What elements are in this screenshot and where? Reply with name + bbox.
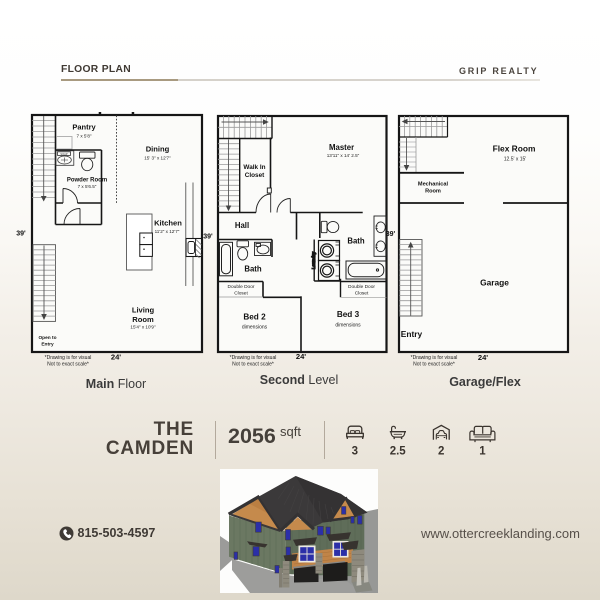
svg-text:39': 39' xyxy=(386,231,396,238)
svg-text:Garage: Garage xyxy=(480,278,509,288)
svg-text:Closet: Closet xyxy=(355,290,369,296)
svg-text:dimensions: dimensions xyxy=(335,323,361,329)
svg-text:Mechanical: Mechanical xyxy=(418,182,449,188)
svg-text:7 x 5'8": 7 x 5'8" xyxy=(76,134,91,139)
svg-text:Open to: Open to xyxy=(38,335,56,341)
svg-text:SOAP: SOAP xyxy=(60,152,67,156)
svg-text:Entry: Entry xyxy=(41,342,54,348)
svg-text:Room: Room xyxy=(425,189,441,195)
svg-text:*Drawing is for visual: *Drawing is for visual xyxy=(230,355,277,361)
svg-text:Laundry: Laundry xyxy=(311,251,316,269)
svg-text:Powder Room: Powder Room xyxy=(67,178,107,184)
svg-text:Bed 3: Bed 3 xyxy=(337,310,360,319)
svg-text:Walk In: Walk In xyxy=(243,164,265,171)
svg-text:2.5: 2.5 xyxy=(390,446,407,458)
svg-text:1: 1 xyxy=(479,446,486,458)
svg-text:dimensions: dimensions xyxy=(242,325,268,331)
svg-text:Bath: Bath xyxy=(347,236,365,245)
svg-text:Master: Master xyxy=(329,143,354,152)
svg-text:12.5' x 15': 12.5' x 15' xyxy=(504,156,527,162)
svg-text:*Drawing is for visual: *Drawing is for visual xyxy=(45,355,92,361)
svg-text:Kitchen: Kitchen xyxy=(154,219,182,228)
svg-text:39': 39' xyxy=(16,231,26,238)
svg-text:13'11" x 14' 2.5": 13'11" x 14' 2.5" xyxy=(327,153,360,158)
svg-text:Double Door: Double Door xyxy=(348,284,375,290)
svg-text:2: 2 xyxy=(438,446,444,458)
svg-text:15'4" x 10'9": 15'4" x 10'9" xyxy=(130,325,156,330)
svg-text:Double Door: Double Door xyxy=(228,284,255,290)
svg-text:24': 24' xyxy=(296,352,306,361)
svg-text:Pantry: Pantry xyxy=(72,123,96,132)
svg-text:Entry: Entry xyxy=(401,329,423,339)
svg-text:Dining: Dining xyxy=(146,145,170,154)
svg-text:Room: Room xyxy=(132,315,154,324)
svg-text:Closet: Closet xyxy=(245,172,265,179)
svg-text:3: 3 xyxy=(352,446,358,458)
svg-text:*Drawing is for visual: *Drawing is for visual xyxy=(411,355,458,361)
svg-text:Bed 2: Bed 2 xyxy=(243,313,266,322)
svg-text:24': 24' xyxy=(111,353,121,362)
svg-text:Hall: Hall xyxy=(235,221,249,230)
svg-text:24': 24' xyxy=(478,353,488,362)
svg-text:Not to exact scale*: Not to exact scale* xyxy=(232,362,274,368)
svg-text:Closet: Closet xyxy=(234,290,248,296)
svg-text:Bath: Bath xyxy=(244,264,262,273)
svg-text:11'2" x 12'7": 11'2" x 12'7" xyxy=(155,229,180,234)
svg-text:Living: Living xyxy=(132,306,155,315)
svg-text:Flex Room: Flex Room xyxy=(493,143,536,153)
svg-text:15' 3" x 12'7": 15' 3" x 12'7" xyxy=(144,156,171,161)
svg-text:7 x 5'6.5": 7 x 5'6.5" xyxy=(78,184,97,189)
svg-text:Not to exact scale*: Not to exact scale* xyxy=(413,362,455,368)
svg-text:39': 39' xyxy=(203,234,213,241)
svg-text:Not to exact scale*: Not to exact scale* xyxy=(47,362,89,368)
